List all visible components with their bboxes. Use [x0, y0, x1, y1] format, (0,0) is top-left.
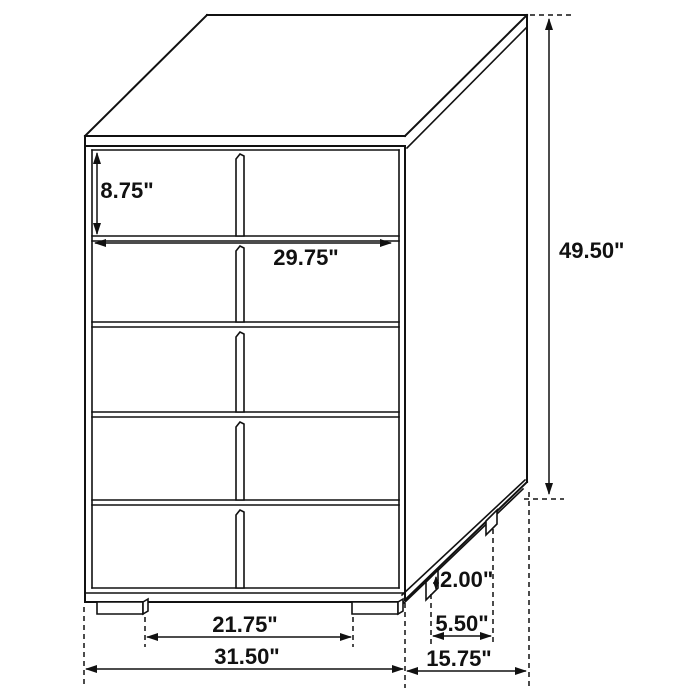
front-left-foot: [97, 602, 143, 614]
top-right-edge: [405, 15, 527, 136]
dim-label-foot-height: 2.00": [440, 567, 493, 592]
dim-label-side-foot-spacing: 5.50": [435, 611, 488, 636]
diagram-canvas: 8.75" 29.75" 49.50" 2.00" 5.50" 15.75" 2…: [0, 0, 700, 700]
front-left-foot-side: [143, 599, 148, 614]
dim-front-foot-spacing: 21.75": [147, 612, 351, 637]
dim-overall-height: 49.50": [549, 19, 624, 494]
chest-dimension-diagram: 8.75" 29.75" 49.50" 2.00" 5.50" 15.75" 2…: [0, 0, 700, 700]
dim-label-front-foot-spacing: 21.75": [212, 612, 277, 637]
dim-label-overall-depth: 15.75": [426, 646, 491, 671]
drawer-handle: [236, 510, 244, 588]
dim-label-drawer-height: 8.75": [100, 178, 153, 203]
dim-drawer-height: 8.75": [97, 153, 154, 234]
dim-overall-width: 31.50": [86, 644, 403, 669]
drawer-dividers: [92, 236, 399, 505]
side-back-foot: [486, 510, 497, 535]
drawer-handle: [236, 422, 244, 500]
chest-top-panel: [85, 15, 527, 148]
chest-front-frame: [85, 136, 405, 602]
top-left-edge: [85, 15, 207, 136]
front-right-foot: [352, 602, 398, 614]
dim-label-overall-height: 49.50": [559, 238, 624, 263]
dim-side-foot-spacing: 5.50": [433, 611, 491, 636]
top-right-thickness-edge: [407, 27, 527, 148]
dim-overall-depth: 15.75": [407, 646, 526, 671]
dim-label-drawer-width: 29.75": [273, 245, 338, 270]
dim-label-overall-width: 31.50": [214, 644, 279, 669]
drawer-handle: [236, 154, 244, 236]
chest-side-panel: [402, 15, 527, 603]
dim-foot-height: 2.00": [436, 567, 493, 592]
drawer-handle: [236, 332, 244, 412]
drawer-handles: [236, 154, 244, 588]
front-right-foot-side: [398, 599, 403, 614]
drawer-handle: [236, 246, 244, 322]
extension-lines: [84, 15, 572, 688]
